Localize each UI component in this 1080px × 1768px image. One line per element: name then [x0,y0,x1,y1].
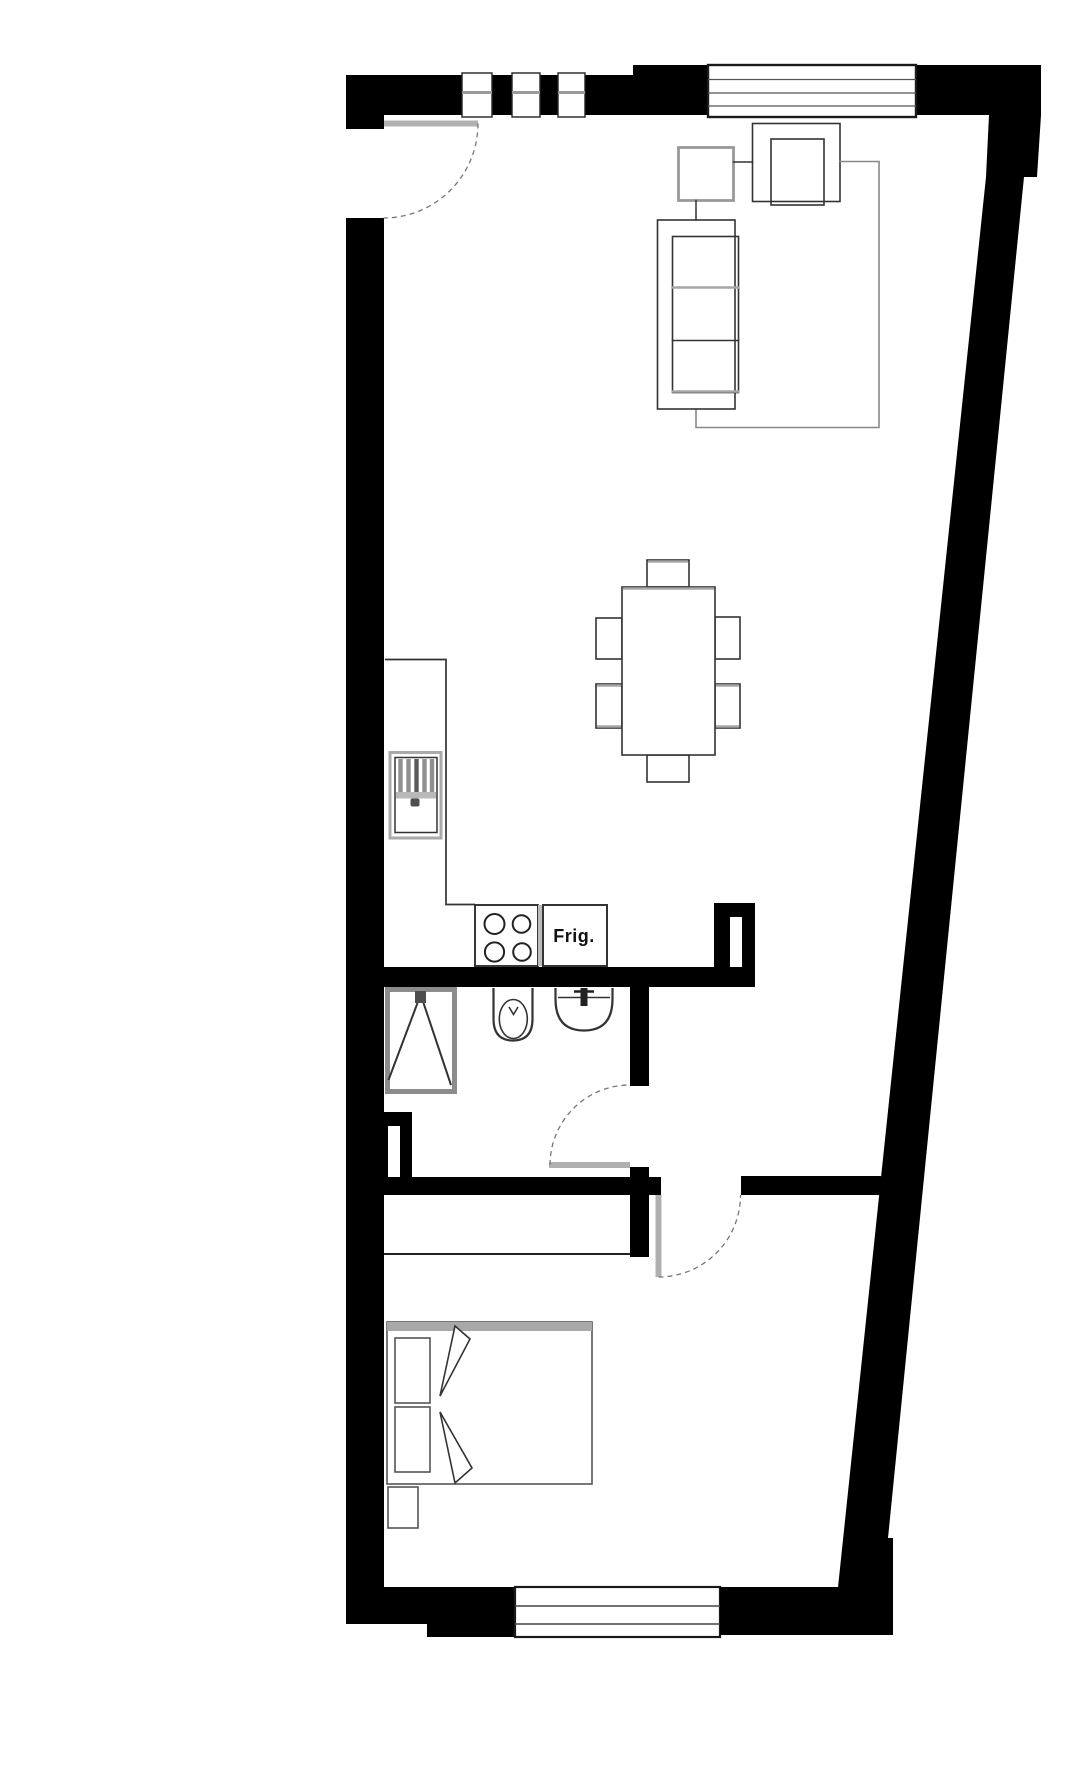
svg-text:Frig.: Frig. [553,926,595,946]
